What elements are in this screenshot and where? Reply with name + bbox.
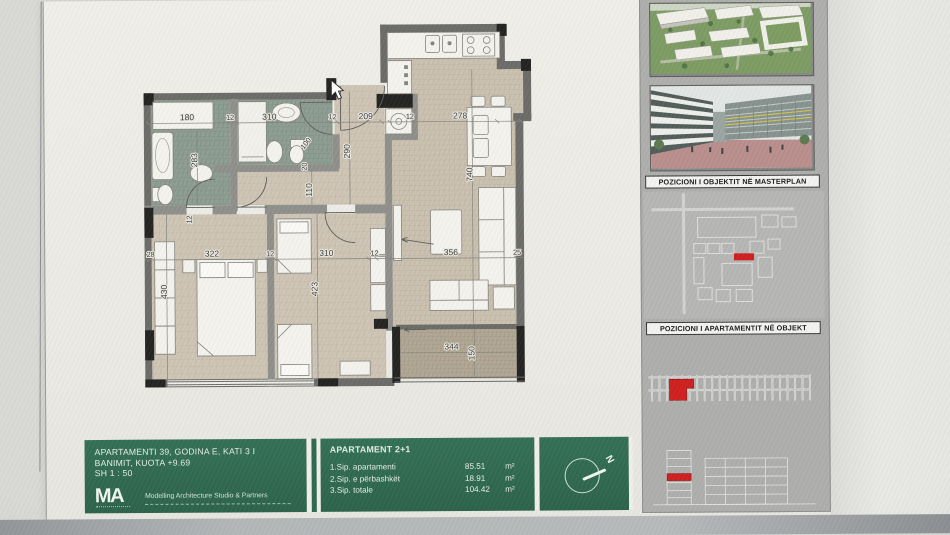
svg-text:310: 310 [262,112,277,122]
shower [238,102,266,162]
masterplan-position-label: POZICIONI I OBJEKTIT NË MASTERPLAN [645,175,820,189]
svg-text:20: 20 [300,162,309,170]
screen-photo: 180 12 310 12 209 12 278 28 322 12 310 1… [0,0,950,535]
title-block: APARTAMENTI 39, GODINA E, KATI 3 I BANIM… [84,437,633,514]
table-row: 3.Sip. totale 104.42 m² [330,484,525,497]
single-bed-top [277,219,311,273]
svg-text:25: 25 [513,248,521,257]
firm-name: Modelling Architecture Studio & Partners [145,492,268,500]
svg-text:310: 310 [319,248,334,258]
floor-highlight-marker [667,474,691,481]
apartment-position-label: POZICIONI I APARTAMENTIT NË OBJEKT [646,321,821,335]
svg-text:150: 150 [466,346,476,361]
balcony-floor [400,329,517,379]
double-bed [197,259,256,356]
fridge [387,61,411,94]
svg-text:180: 180 [180,112,195,122]
compass-panel: N [539,437,633,511]
svg-text:278: 278 [453,110,468,120]
sidebar-panel: POZICIONI I OBJEKTIT NË MASTERPLAN POZIC [639,0,831,513]
svg-text:356: 356 [444,247,459,257]
svg-text:740: 740 [464,167,474,182]
svg-text:110: 110 [304,183,314,197]
render-street-image [650,84,815,171]
svg-text:423: 423 [309,282,319,297]
svg-text:12: 12 [185,215,194,223]
title-block-divider-1 [307,439,321,512]
apartment-type-header: APARTAMENT 2+1 [330,443,525,454]
firm-address-line [145,503,291,505]
svg-text:12: 12 [370,249,378,258]
svg-text:344: 344 [444,341,459,351]
ottoman [493,287,514,309]
svg-text:290: 290 [342,144,352,159]
svg-text:12: 12 [226,113,234,122]
bidet [266,141,282,163]
ma-logo: MA [95,489,123,504]
svg-text:283: 283 [189,153,199,168]
north-label: N [602,454,615,466]
masterplan-diagram [643,191,824,320]
svg-text:12: 12 [266,249,274,258]
ma-logo-subtext-line [96,506,130,507]
apartment-position-diagram [644,337,825,424]
stove [463,34,495,56]
svg-text:322: 322 [205,249,220,259]
apartment-area-table: APARTAMENT 2+1 1.Sip. apartamenti 85.51 … [321,437,535,512]
single-bed-bottom [278,324,312,378]
drawing-scale: SH 1 : 50 [95,467,307,479]
building-highlight-marker [734,253,754,260]
svg-text:12: 12 [406,112,414,121]
render-aerial-image [649,2,814,77]
svg-text:28: 28 [147,250,155,259]
svg-text:430: 430 [159,285,169,300]
dining-set [467,96,512,177]
svg-text:209: 209 [359,111,374,121]
building-elevation-diagram [645,423,826,511]
svg-text:12: 12 [328,112,336,121]
toilet [158,185,173,205]
title-block-project-info: APARTAMENTI 39, GODINA E, KATI 3 I BANIM… [84,439,307,514]
